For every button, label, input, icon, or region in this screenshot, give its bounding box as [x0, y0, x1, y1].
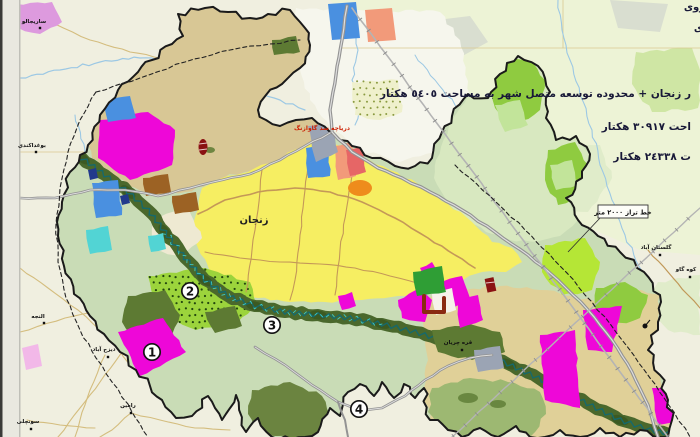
orchard-dot: [363, 94, 365, 96]
green-zone-dot: [185, 307, 187, 309]
orchard-dot: [363, 107, 365, 109]
green-zone-dot: [194, 314, 196, 316]
green-zone-dot: [179, 321, 181, 323]
orchard-dot: [356, 93, 358, 95]
orchard-dot: [353, 88, 355, 90]
green-zone-dot: [205, 308, 207, 310]
zanjan-master-plan-map: ساریجالوبوغداکندیالنجهدیزج آبادرامینسونچ…: [0, 0, 700, 437]
village-dot: [35, 151, 37, 153]
area-number-3: 3: [268, 319, 276, 333]
map-canvas: ساریجالوبوغداکندیالنجهدیزج آبادرامینسونچ…: [0, 0, 700, 437]
green-zone-dot: [175, 289, 177, 291]
red-hatched-marker: [199, 139, 208, 155]
orchard-dot: [356, 80, 358, 82]
page-edge-strip: [0, 0, 20, 437]
green-zone-dot: [155, 289, 157, 291]
green-zone-dot: [178, 282, 180, 284]
green-zone-dot: [201, 301, 203, 303]
village-dot: [461, 349, 463, 351]
green-zone-dot: [249, 294, 251, 296]
orchard-dot: [366, 101, 368, 103]
village-dot: [43, 322, 45, 324]
area-number-1: 1: [148, 346, 156, 360]
orchard-dot: [362, 80, 364, 82]
green-zone-dot: [223, 282, 225, 284]
green-zone-dot: [211, 308, 213, 310]
lake-label-gavazang: دریاچه سد گاوازنگ: [294, 124, 350, 132]
village-label: قره چریان: [444, 340, 473, 346]
orchard-dot: [376, 94, 378, 96]
green-zone-dot: [198, 309, 200, 311]
village-label: گلستان آباد: [641, 243, 673, 251]
green-zone-dot: [155, 275, 157, 277]
green-zone-dot: [181, 301, 183, 303]
green-zone-dot: [175, 302, 177, 304]
green-zone-dot: [185, 321, 187, 323]
green-zone-dot: [149, 276, 151, 278]
green-zone-dot: [201, 315, 203, 317]
blue-zone-patch: [92, 180, 122, 218]
page-edge-dark-line: [0, 0, 3, 437]
green-zone-dot: [207, 302, 209, 304]
legend-line-boundary: ر زنجان + محدوده توسعه متصل شهر به مساحت…: [379, 88, 691, 100]
green-zone-dot: [213, 302, 215, 304]
green-zone-dot: [192, 321, 194, 323]
green-zone-dot: [153, 281, 155, 283]
green-zone-dot: [159, 282, 161, 284]
green-zone-dot: [221, 276, 223, 278]
orchard-dot: [373, 113, 375, 115]
orchard-dot: [385, 101, 387, 103]
village-built-patch: [474, 346, 504, 372]
green-zone-dot: [227, 275, 229, 277]
magenta-development-patch: [540, 330, 580, 408]
orchard-dot: [396, 81, 398, 83]
village-dot: [689, 276, 691, 278]
orchard-dot: [399, 101, 401, 103]
green-zone-dot: [237, 282, 239, 284]
green-zone-dot: [188, 301, 190, 303]
green-zone-dot: [165, 282, 167, 284]
orchard-dot: [373, 87, 375, 89]
orchard-dot: [389, 81, 391, 83]
woodland-spot: [458, 393, 478, 403]
area-number-2: 2: [186, 285, 194, 299]
gray-terrain-blob: [610, 0, 668, 32]
green-zone-dot: [182, 276, 184, 278]
village-label: کوه گاو: [675, 266, 697, 273]
page-edge-divider: [19, 0, 21, 437]
orchard-dot: [356, 107, 358, 109]
green-zone-dot: [201, 288, 203, 290]
orchard-dot: [379, 101, 381, 103]
green-zone-dot: [188, 314, 190, 316]
contour-label-text: خط تراز ٢٠٠٠ متر: [593, 209, 652, 217]
green-zone-dot: [181, 314, 183, 316]
orchard-dot: [366, 114, 368, 116]
orchard-dot: [376, 82, 378, 84]
orchard-dot: [376, 106, 378, 108]
green-zone-dot: [178, 296, 180, 298]
edge-text-fragment-1: روی: [684, 2, 700, 13]
orchard-dot: [392, 101, 394, 103]
green-zone-dot: [168, 288, 170, 290]
village-label: النجه: [31, 314, 45, 320]
green-zone-dot: [236, 307, 238, 309]
orchard-dot: [359, 87, 361, 89]
green-zone-dot: [214, 276, 216, 278]
orchard-dot: [383, 81, 385, 83]
orchard-dot: [370, 107, 372, 109]
orange-zone-ellipse: [348, 180, 372, 196]
green-zone-dot: [204, 295, 206, 297]
orchard-dot: [395, 106, 397, 108]
cyan-zone-patch: [86, 226, 112, 254]
village-label: دیزج آباد: [92, 345, 115, 353]
green-zone-dot: [187, 276, 189, 278]
orchard-dot: [359, 100, 361, 102]
edge-text-fragment-2: ی: [694, 23, 700, 34]
village-label: رامین: [120, 403, 136, 409]
green-zone-dot: [172, 295, 174, 297]
village-dot: [39, 27, 41, 29]
area-marker-4: 4: [351, 401, 367, 417]
green-zone-dot: [195, 327, 197, 329]
orchard-dot: [369, 95, 371, 97]
orchard-dot: [379, 114, 381, 116]
orchard-dot: [392, 114, 394, 116]
salmon-zone-patch: [365, 8, 396, 42]
village-dot: [30, 428, 32, 430]
woodland-spot: [490, 400, 506, 408]
green-zone-dot: [234, 288, 236, 290]
village-dot: [130, 412, 132, 414]
green-zone-dot: [162, 275, 164, 277]
village-label: ساریجالو: [21, 19, 46, 25]
green-zone-dot: [198, 321, 200, 323]
green-zone-dot: [220, 301, 222, 303]
green-zone-dot: [194, 302, 196, 304]
legend-line-area1: احت ٣٠٩١٧ هکتار: [601, 121, 691, 133]
green-zone-dot: [191, 308, 193, 310]
village-label: سونچلی: [17, 419, 40, 425]
cyan-zone-patch: [148, 233, 166, 252]
green-zone-dot: [244, 283, 246, 285]
green-zone-dot: [230, 281, 232, 283]
area-marker-3: 3: [264, 317, 280, 333]
orchard-dot: [369, 82, 371, 84]
village-dot: [659, 254, 661, 256]
village-dot: [107, 356, 109, 358]
area-marker-1: 1: [144, 344, 160, 360]
green-zone-dot: [210, 294, 212, 296]
orchard-dot: [385, 113, 387, 115]
green-zone-dot: [240, 314, 242, 316]
orchard-dot: [359, 113, 361, 115]
city-label-zanjan: زنجان: [239, 215, 268, 226]
orchard-dot: [388, 107, 390, 109]
orchard-dot: [382, 106, 384, 108]
area-number-4: 4: [355, 403, 363, 417]
orchard-dot: [365, 87, 367, 89]
orchard-dot: [353, 101, 355, 103]
green-zone-dot: [169, 275, 171, 277]
area-marker-2: 2: [182, 283, 198, 299]
village-label: بوغداکندی: [18, 142, 46, 149]
orchard-dot: [373, 101, 375, 103]
legend-line-area2: ت ٢٤٣٣٨ هکتار: [612, 151, 691, 163]
green-zone-dot: [174, 276, 176, 278]
green-zone-dot: [240, 289, 242, 291]
green-zone-dot: [171, 281, 173, 283]
green-zone-dot: [201, 327, 203, 329]
green-zone-dot: [197, 295, 199, 297]
green-zone-dot: [178, 308, 180, 310]
green-zone-dot: [204, 320, 206, 322]
